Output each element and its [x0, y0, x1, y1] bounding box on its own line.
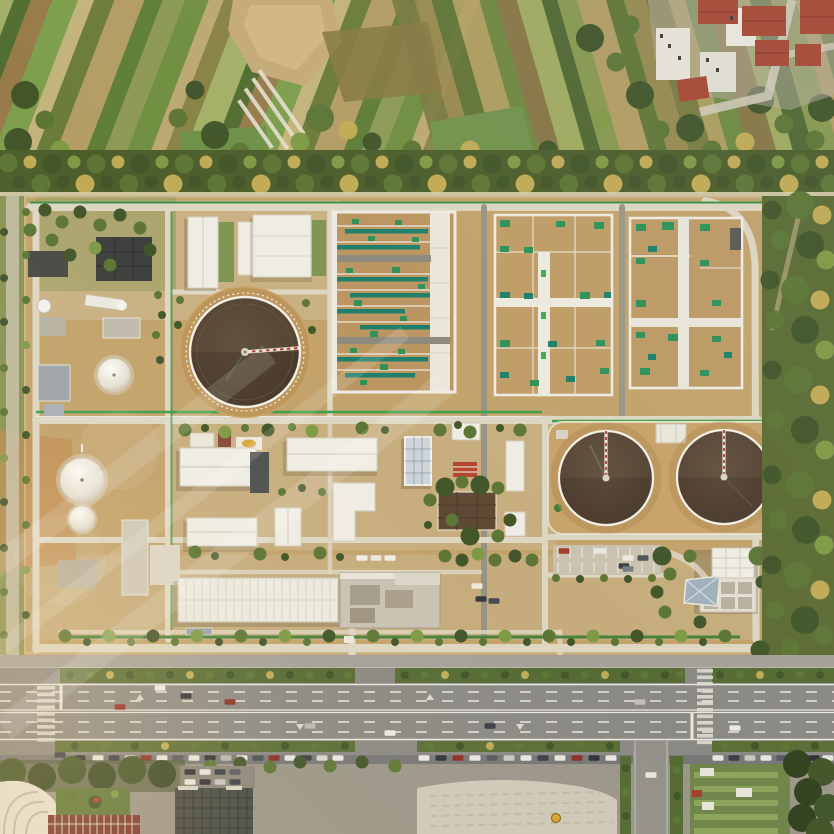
workshop-c [253, 215, 311, 277]
clarifier-secondary-east [672, 425, 776, 529]
main-road [0, 655, 834, 761]
blower-frame-tower [401, 437, 431, 489]
aeration-basin-west [333, 212, 455, 392]
greenhouse-rows-red [48, 815, 140, 834]
greenhouse-field [690, 764, 790, 834]
blue-gray-block [38, 365, 70, 401]
garden-patch [56, 788, 130, 816]
dark-roof-section [250, 452, 269, 493]
west-building-short [150, 545, 180, 585]
west-shed [58, 560, 98, 588]
digester-dome-small-south [67, 504, 98, 535]
warehouse-long [173, 578, 339, 627]
aerial-photo [0, 0, 834, 834]
clarifier-secondary-west [554, 426, 658, 530]
digester-dome-small-north [94, 355, 134, 395]
utility-building-a [40, 317, 66, 336]
tree-belt [0, 150, 834, 197]
utility-building-b [103, 318, 140, 338]
brown-roof-building [438, 492, 496, 530]
gate-hut-row [190, 433, 214, 447]
median-south [55, 741, 834, 752]
parked-cars-row [93, 755, 834, 760]
east-workshop-tall [506, 441, 524, 491]
right-greenbelt [751, 191, 834, 660]
dark-roof-building [96, 237, 152, 281]
aeration-basin-east [630, 218, 742, 388]
aeration-basin-center [495, 215, 612, 395]
crosswalk-west [37, 686, 55, 742]
rooftop-dark-grid [175, 766, 255, 834]
gate-house [344, 636, 354, 643]
blue-gray-block-annex [44, 404, 64, 416]
west-building-long [122, 520, 148, 595]
clarifier-primary-large [179, 286, 311, 418]
median-north [60, 668, 834, 683]
satellite-dish [37, 299, 51, 313]
dark-roof-shed-small [28, 251, 68, 277]
workshop-buildings-north [184, 215, 326, 291]
red-container [453, 462, 477, 477]
loader-machine [552, 814, 561, 823]
